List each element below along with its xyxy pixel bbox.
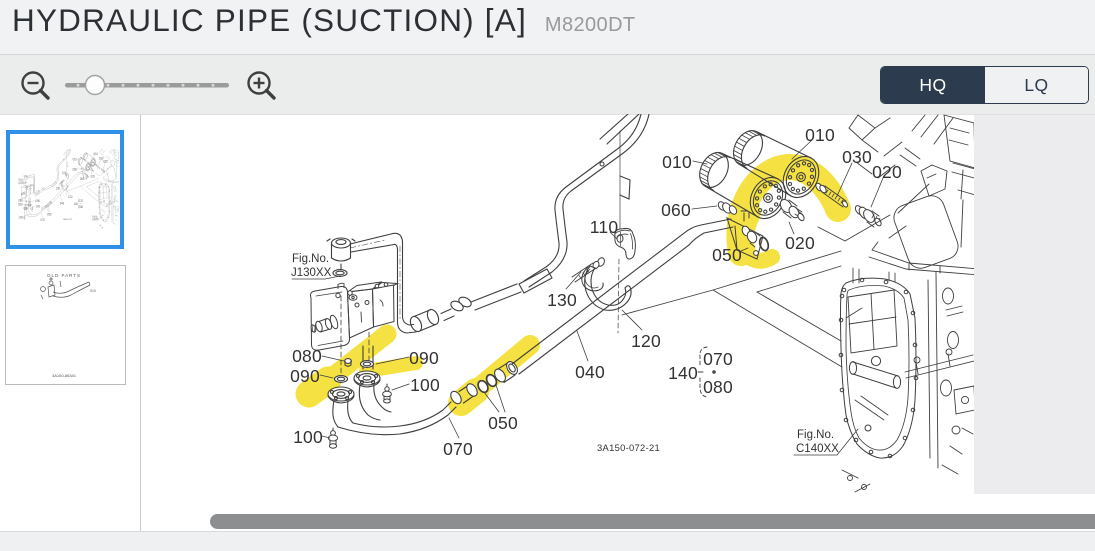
svg-text:100: 100 (410, 375, 440, 395)
svg-text:080: 080 (703, 377, 733, 397)
svg-text:010: 010 (90, 289, 96, 293)
svg-text:050: 050 (488, 413, 518, 433)
svg-text:C140XX: C140XX (796, 443, 839, 455)
svg-text:110: 110 (590, 217, 619, 237)
svg-text:060: 060 (661, 200, 691, 220)
svg-text:070: 070 (443, 439, 473, 459)
svg-text:Fig.No.: Fig.No. (292, 253, 329, 265)
svg-text:030: 030 (842, 147, 872, 167)
svg-text:130: 130 (547, 290, 577, 310)
svg-text:140: 140 (668, 363, 698, 383)
svg-text:100: 100 (293, 427, 323, 447)
svg-text:J130XX: J130XX (291, 267, 332, 279)
svg-text:010: 010 (662, 152, 692, 172)
svg-text:010: 010 (805, 125, 835, 145)
svg-text:020: 020 (785, 233, 815, 253)
svg-text:120: 120 (631, 331, 661, 351)
svg-text:090: 090 (290, 366, 320, 386)
svg-text:080: 080 (292, 346, 322, 366)
svg-text:3A150-072-21: 3A150-072-21 (597, 442, 660, 453)
svg-text:050: 050 (712, 245, 742, 265)
svg-text:090: 090 (409, 348, 439, 368)
svg-text:3A150-86341: 3A150-86341 (52, 373, 77, 378)
svg-text:040: 040 (575, 362, 605, 382)
svg-text:070: 070 (703, 349, 733, 369)
svg-text:OLD PARTS: OLD PARTS (47, 273, 81, 278)
svg-text:Fig.No.: Fig.No. (797, 429, 834, 441)
svg-text:020: 020 (872, 162, 902, 182)
